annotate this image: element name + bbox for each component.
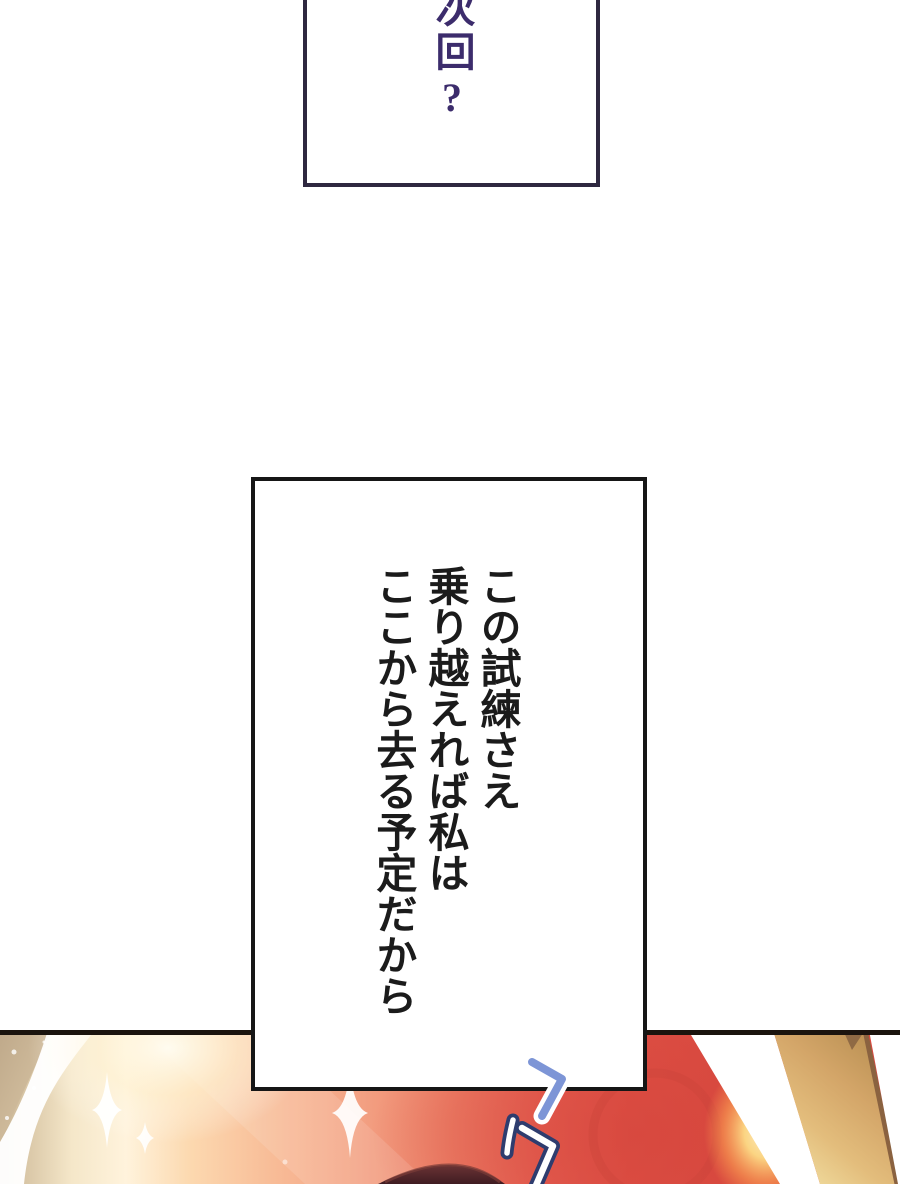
sfx-marks (480, 1040, 610, 1184)
manga-page: 次回? この試練さえ 乗り越えれば私は ここから去る予定だから (0, 0, 900, 1184)
speech-bubble-top-text: 次回? (432, 0, 472, 124)
sfx-overlay (480, 1040, 610, 1184)
speech-bubble-top: 次回? (303, 0, 600, 187)
speech-bubble-middle: この試練さえ 乗り越えれば私は ここから去る予定だから (251, 477, 647, 1091)
sfx-fu-mark (532, 1062, 562, 1116)
sfx-wa-mark (507, 1120, 553, 1184)
speech-bubble-middle-text: この試練さえ 乗り越えれば私は ここから去る予定だから (367, 565, 523, 1016)
